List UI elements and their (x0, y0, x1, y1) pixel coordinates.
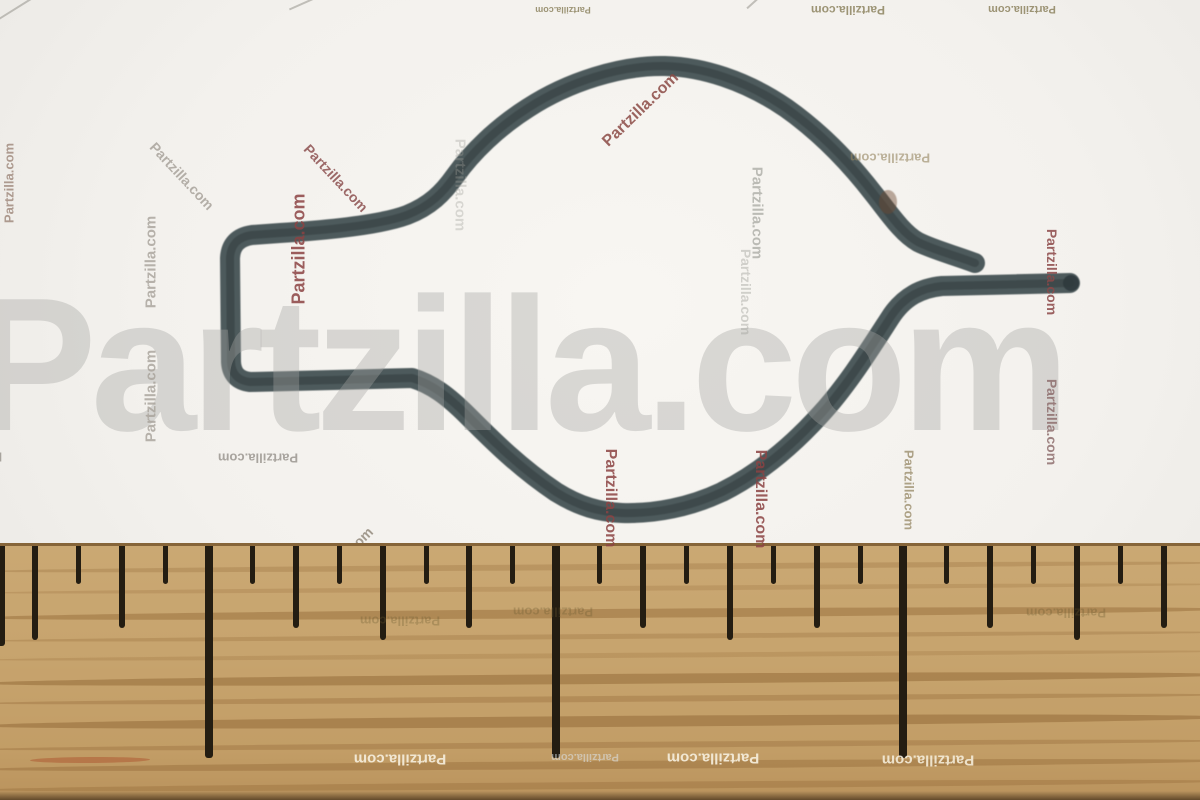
rust-spot (879, 190, 897, 214)
wood-grain-streak (0, 670, 1200, 689)
wood-grain-streak (0, 738, 1200, 753)
sub-tick (1031, 546, 1036, 584)
inch-tick (552, 546, 560, 758)
sub-tick (727, 546, 733, 640)
sub-tick (119, 546, 125, 628)
sub-tick (250, 546, 255, 584)
sub-tick (293, 546, 299, 628)
sub-tick (76, 546, 81, 584)
sub-tick (466, 546, 472, 628)
sub-tick (510, 546, 515, 584)
sub-tick (987, 546, 993, 628)
sub-tick (424, 546, 429, 584)
partial-edge-tick (0, 546, 5, 646)
inch-tick (205, 546, 213, 758)
wood-grain-streak (0, 757, 1200, 774)
sub-tick (32, 546, 38, 640)
sub-tick (1161, 546, 1167, 628)
wood-red-streak (30, 757, 150, 764)
wire-end-face (1063, 275, 1079, 291)
sub-tick (814, 546, 820, 628)
sub-tick (163, 546, 168, 584)
sub-tick (380, 546, 386, 640)
sub-tick (1118, 546, 1123, 584)
sub-tick (640, 546, 646, 628)
wood-grain-streak (0, 605, 1200, 623)
wood-grain-streak (0, 630, 1200, 644)
wooden-ruler: 202122 Fl (0, 543, 1200, 800)
wood-grain-streak (0, 692, 1200, 707)
sub-tick (597, 546, 602, 584)
sub-tick (1074, 546, 1080, 640)
inch-tick (899, 546, 907, 758)
wood-grain-streak (0, 712, 1200, 732)
sub-tick (771, 546, 776, 584)
ruler-bottom-edge (0, 791, 1200, 800)
wire-shading (230, 66, 1070, 513)
sub-tick (337, 546, 342, 584)
sub-tick (684, 546, 689, 584)
product-photo: 202122 Fl Partzilla.com Partzilla.comPar… (0, 0, 1200, 800)
wood-grain-streak (0, 649, 1200, 663)
sub-tick (858, 546, 863, 584)
sub-tick (944, 546, 949, 584)
